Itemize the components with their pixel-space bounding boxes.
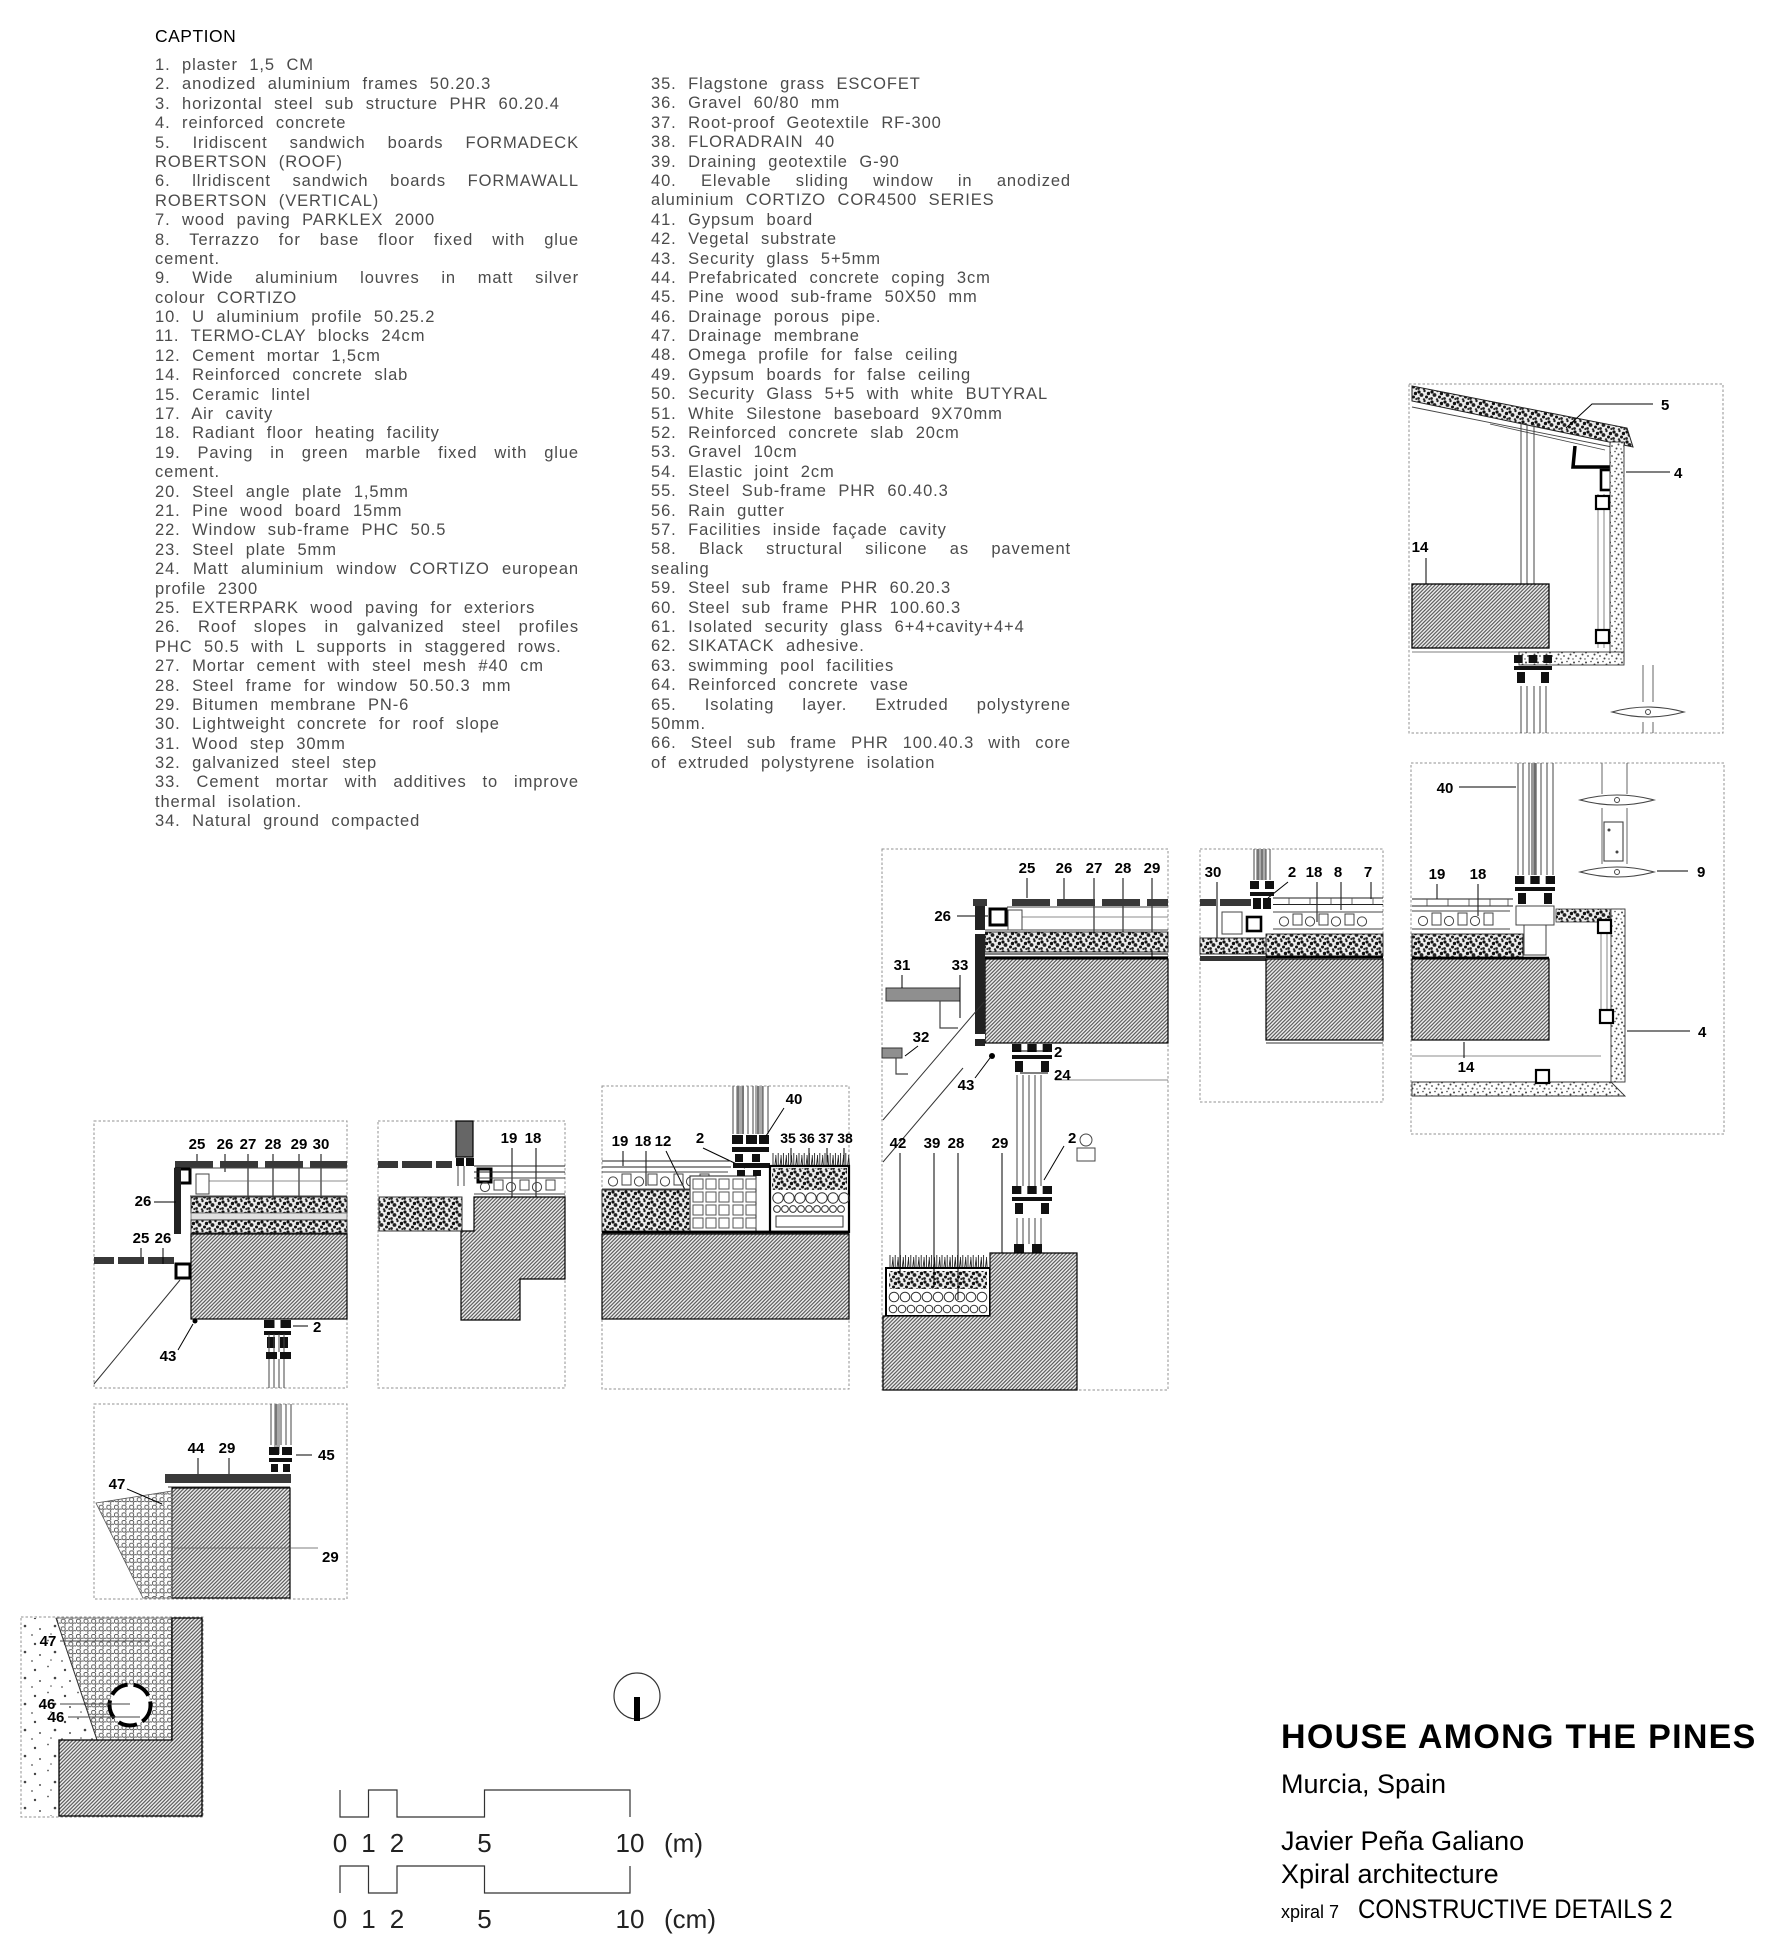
svg-text:47: 47 [40,1633,57,1650]
svg-text:25: 25 [133,1230,150,1247]
svg-text:10: 10 [616,1828,645,1858]
svg-text:45: 45 [318,1447,335,1464]
svg-text:39: 39 [924,1135,941,1152]
svg-text:26: 26 [135,1193,152,1210]
svg-text:2: 2 [390,1904,404,1934]
svg-text:19: 19 [612,1133,629,1150]
svg-text:47: 47 [109,1476,126,1493]
svg-text:1: 1 [361,1904,375,1934]
svg-text:29: 29 [1144,860,1161,877]
svg-text:28: 28 [1115,860,1132,877]
svg-text:10: 10 [616,1904,645,1934]
svg-text:18: 18 [1470,866,1487,883]
svg-text:2: 2 [1288,864,1296,881]
svg-text:30: 30 [313,1136,330,1153]
svg-text:42: 42 [890,1135,907,1152]
svg-text:44: 44 [188,1440,205,1457]
svg-text:1: 1 [361,1828,375,1858]
svg-text:9: 9 [1697,864,1705,881]
svg-text:26: 26 [155,1230,172,1247]
svg-text:2: 2 [696,1130,704,1147]
svg-text:26: 26 [1056,860,1073,877]
svg-text:27: 27 [1086,860,1103,877]
svg-text:32: 32 [913,1029,930,1046]
svg-text:4: 4 [1698,1024,1707,1041]
svg-text:8: 8 [1334,864,1342,881]
svg-text:29: 29 [219,1440,236,1457]
svg-text:35: 35 [780,1130,796,1146]
svg-text:(cm): (cm) [664,1904,716,1934]
svg-text:18: 18 [525,1130,542,1147]
svg-text:26: 26 [217,1136,234,1153]
svg-text:46: 46 [48,1709,65,1726]
svg-text:28: 28 [948,1135,965,1152]
svg-text:25: 25 [189,1136,206,1153]
svg-text:40: 40 [1437,780,1454,797]
svg-text:29: 29 [322,1549,339,1566]
svg-text:18: 18 [635,1133,652,1150]
svg-text:37: 37 [818,1130,834,1146]
svg-text:40: 40 [786,1091,803,1108]
svg-text:26: 26 [934,908,951,925]
svg-text:14: 14 [1458,1059,1475,1076]
svg-text:2: 2 [1054,1044,1062,1061]
svg-text:43: 43 [160,1348,177,1365]
svg-text:2: 2 [313,1319,321,1336]
svg-text:30: 30 [1205,864,1222,881]
svg-text:2: 2 [390,1828,404,1858]
svg-text:27: 27 [240,1136,257,1153]
svg-text:(m): (m) [664,1828,703,1858]
svg-text:4: 4 [1674,465,1683,482]
svg-text:5: 5 [477,1828,491,1858]
svg-text:19: 19 [1429,866,1446,883]
svg-text:5: 5 [1661,397,1669,414]
svg-text:0: 0 [333,1904,347,1934]
svg-text:12: 12 [655,1133,672,1150]
svg-text:7: 7 [1364,864,1372,881]
svg-text:24: 24 [1054,1067,1071,1084]
svg-text:0: 0 [333,1828,347,1858]
svg-text:19: 19 [501,1130,518,1147]
svg-text:25: 25 [1019,860,1036,877]
svg-text:14: 14 [1412,539,1429,556]
svg-text:2: 2 [1068,1130,1076,1147]
svg-text:43: 43 [958,1077,975,1094]
svg-text:18: 18 [1306,864,1323,881]
svg-text:29: 29 [291,1136,308,1153]
svg-text:33: 33 [952,957,969,974]
svg-text:29: 29 [992,1135,1009,1152]
svg-text:36: 36 [799,1130,815,1146]
svg-text:38: 38 [837,1130,853,1146]
svg-text:28: 28 [265,1136,282,1153]
svg-text:31: 31 [894,957,911,974]
svg-text:5: 5 [477,1904,491,1934]
